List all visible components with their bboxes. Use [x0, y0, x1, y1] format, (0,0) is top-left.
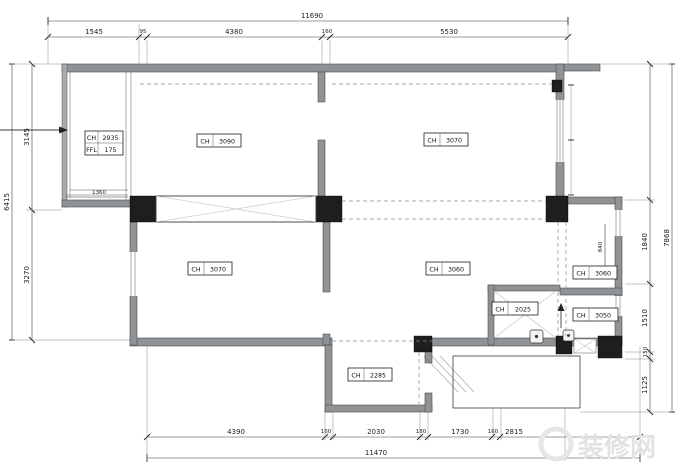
dim-right-seg: 150	[643, 346, 649, 357]
room-label-right-room-upper: CH 3060	[573, 266, 617, 279]
dim-right-overall: 7868	[663, 229, 671, 247]
room-label-value: 2025	[515, 307, 531, 314]
entry-stairs	[424, 356, 580, 408]
wall-entry-right-b	[425, 393, 432, 412]
dim-right-seg: 1840	[641, 233, 649, 251]
dim-bottom: 4390 160 2030 180 1730 160 2815 11470	[144, 346, 643, 462]
dim-bottom-seg: 1730	[451, 428, 469, 436]
dim-bottom-seg: 180	[416, 429, 427, 435]
room-label-value: 3070	[446, 138, 462, 145]
wall-bottom-left	[130, 338, 332, 346]
fixture-dot-icon	[535, 335, 538, 338]
room-label-bathroom: CH 2025	[492, 302, 538, 315]
room-label-bedroom-mid-left: CH 3070	[188, 262, 232, 275]
room-label-key: CH	[495, 307, 504, 314]
watermark-text: 装修网	[578, 432, 656, 463]
dim-top: 11690 1545 95 4380 160 5530	[45, 12, 571, 64]
dim-left-seg: 3270	[23, 266, 31, 284]
dim-top-seg: 5530	[440, 28, 458, 36]
wall-bath-top	[488, 285, 560, 291]
dim-right-seg: 1125	[641, 376, 649, 394]
wall-rightwing-divider	[560, 288, 622, 295]
room-label-key: CH	[576, 313, 585, 320]
wall-balcony-left-window	[62, 64, 67, 207]
wardrobe-symbol	[156, 196, 316, 222]
dim-balcony-width: 1360	[92, 190, 106, 196]
dim-bottom-seg: 4390	[227, 428, 245, 436]
wall-cross-box	[574, 339, 596, 353]
room-label-value: 3060	[595, 271, 611, 278]
dim-bottom-seg: 160	[488, 429, 499, 435]
column	[414, 336, 432, 352]
fixture-dot-icon	[567, 334, 570, 337]
room-label-value: 3050	[595, 313, 611, 320]
dim-top-seg: 160	[322, 29, 333, 35]
room-label-value: 3090	[219, 139, 235, 146]
wall-top-divider-a	[318, 72, 325, 102]
room-label-value: 2285	[370, 373, 386, 380]
column	[130, 196, 156, 222]
wall-mid-divider-stub	[323, 334, 330, 345]
column	[552, 80, 562, 92]
dim-bottom-overall: 11470	[365, 449, 387, 457]
stairs-hatch	[432, 356, 466, 392]
dim-left-seg: 3145	[23, 128, 31, 146]
dim-bottom-seg: 2815	[505, 428, 523, 436]
walls	[62, 64, 623, 412]
stairs-hatch	[440, 356, 474, 392]
room-label-key: CH	[200, 139, 209, 146]
wall-top	[62, 64, 564, 72]
room-label-key: CH	[576, 271, 585, 278]
room-label-key: CH	[191, 267, 200, 274]
room-label-value: 3060	[448, 267, 464, 274]
section-arrow-icon	[0, 127, 68, 134]
room-label-key: CH	[429, 267, 438, 274]
column	[598, 336, 622, 358]
wall-balcony-bottom	[62, 200, 133, 207]
dim-right-room-width: 840	[598, 241, 604, 252]
wall-entry-bottom	[325, 405, 432, 412]
column	[316, 196, 342, 222]
wall-entry-left	[325, 345, 332, 412]
up-arrow-icon	[558, 303, 565, 328]
dim-top-overall: 11690	[301, 12, 323, 20]
room-label-balcony: CH 2935 FFL 175	[85, 131, 123, 155]
room-label-room-top-right: CH 3070	[424, 133, 468, 146]
room-label-bedroom-top-left: CH 3090	[197, 134, 241, 147]
dim-bottom-seg: 160	[321, 429, 332, 435]
wall-mid-divider	[323, 222, 330, 292]
watermark-logo-icon	[541, 429, 571, 459]
room-label-living: CH 3060	[426, 262, 470, 275]
room-label-key: CH	[87, 135, 96, 142]
room-label-entry: CH 2285	[348, 368, 392, 381]
room-label-key: CH	[427, 138, 436, 145]
wall-top-right-stub	[564, 64, 600, 71]
room-label-key: CH	[351, 373, 360, 380]
room-label-value: 3070	[210, 267, 226, 274]
dim-left-overall: 6415	[3, 193, 11, 211]
column	[546, 196, 568, 222]
porch-outline	[453, 356, 580, 408]
room-label-right-room-lower: CH 3050	[573, 308, 618, 321]
wall-top-divider-b	[318, 140, 325, 197]
dim-top-seg: 4380	[225, 28, 243, 36]
room-label-value: 175	[104, 147, 116, 154]
room-label-value: 2935	[102, 135, 118, 142]
dim-right-seg: 1510	[641, 309, 649, 327]
room-label-key: FFL	[86, 147, 97, 154]
floor-plan-page: 11690 1545 95 4380 160 5530 4390 160 203…	[0, 0, 684, 468]
dim-top-seg: 1545	[85, 28, 103, 36]
dim-top-seg: 95	[140, 29, 147, 35]
watermark: 装修网	[541, 429, 656, 463]
dim-bottom-seg: 2030	[367, 428, 385, 436]
floor-plan-canvas: 11690 1545 95 4380 160 5530 4390 160 203…	[0, 0, 684, 468]
